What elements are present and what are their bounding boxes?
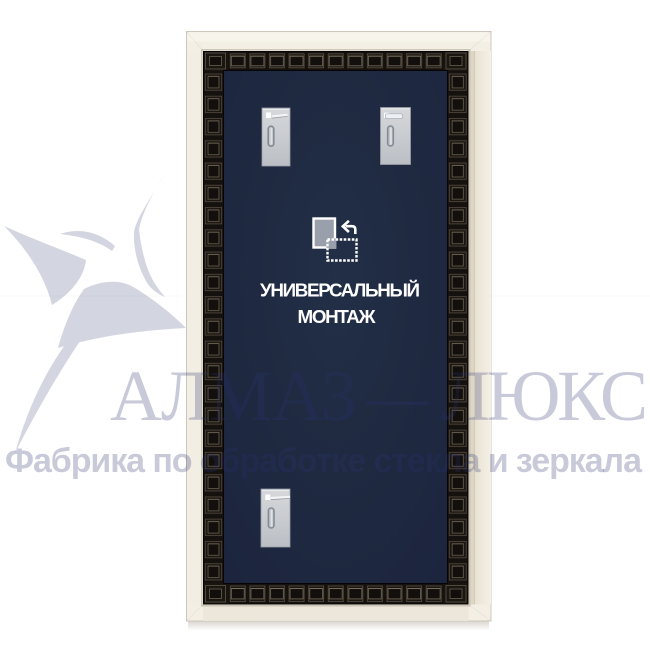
svg-text:ЛЮКС: ЛЮКС xyxy=(441,356,648,436)
svg-text:Фабрика по обработке стекла и: Фабрика по обработке стекла и зеркала xyxy=(5,442,643,480)
svg-text:МОНТАЖ: МОНТАЖ xyxy=(298,306,377,327)
svg-text:—: — xyxy=(366,356,430,436)
svg-text:АЛМАЗ: АЛМАЗ xyxy=(110,356,357,436)
svg-text:УНИВЕРСАЛЬНЫЙ: УНИВЕРСАЛЬНЫЙ xyxy=(260,280,420,301)
